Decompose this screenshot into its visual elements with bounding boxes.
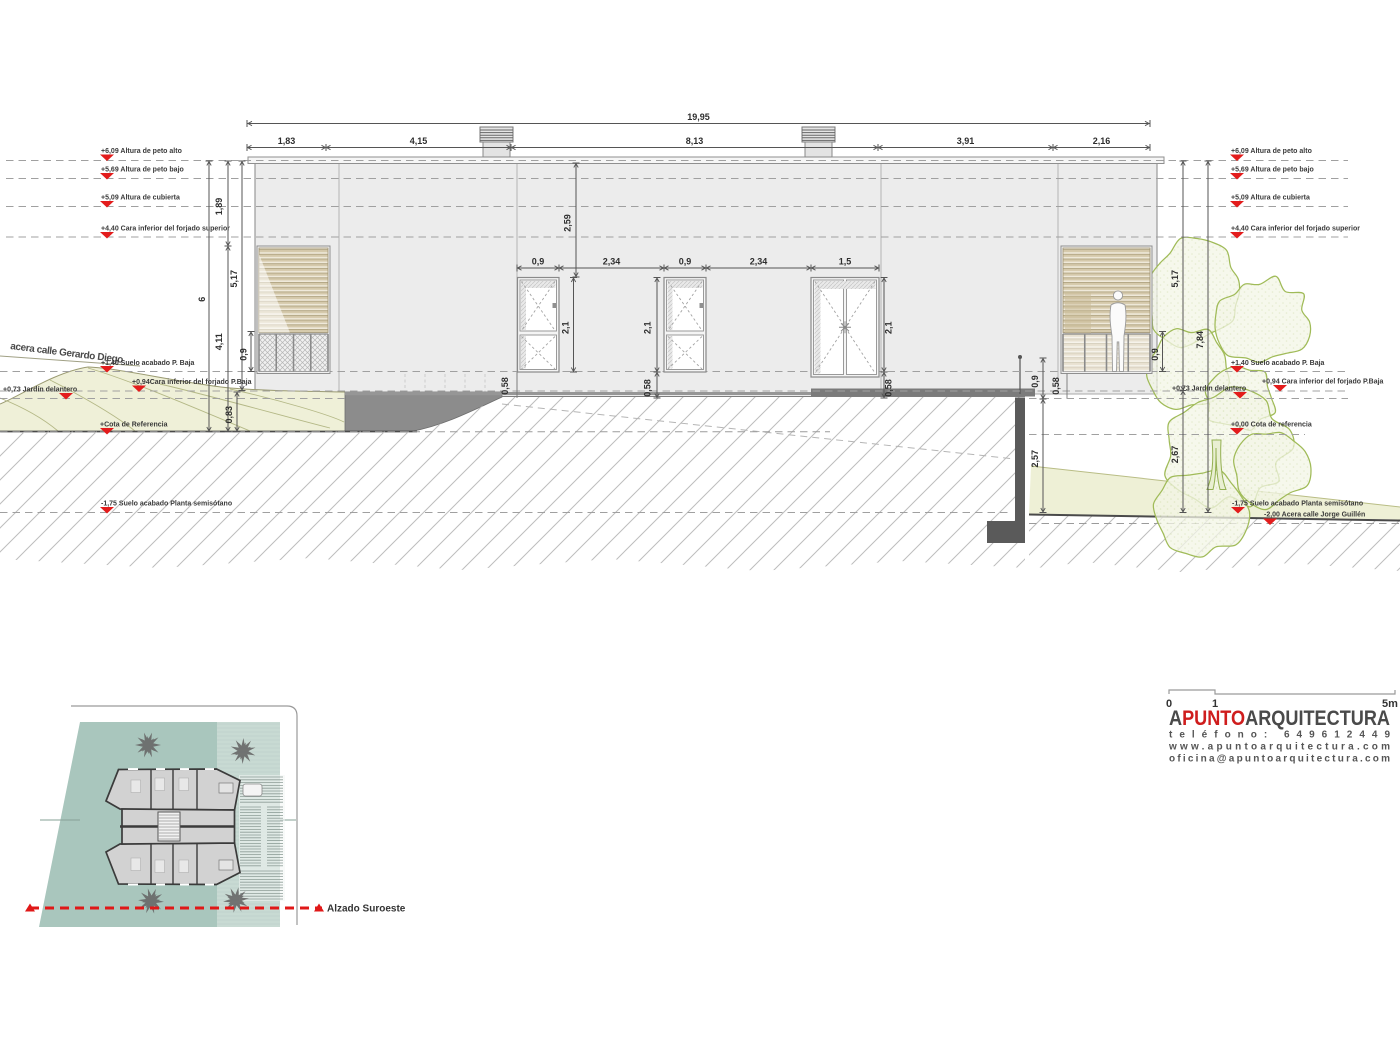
svg-text:oficina@apuntoarquitectura.com: oficina@apuntoarquitectura.com bbox=[1169, 754, 1390, 765]
svg-text:4,15: 4,15 bbox=[410, 136, 428, 146]
svg-text:+0,94Cara inferior del forjado: +0,94Cara inferior del forjado P.Baja bbox=[132, 379, 252, 386]
svg-text:0,9: 0,9 bbox=[239, 348, 249, 361]
svg-text:+6,09 Altura de peto alto: +6,09 Altura de peto alto bbox=[101, 148, 182, 155]
svg-text:-2,00 Acera calle Jorge Guillé: -2,00 Acera calle Jorge Guillén bbox=[1264, 512, 1365, 519]
svg-text:+1,40 Suelo acabado P. Baja: +1,40 Suelo acabado P. Baja bbox=[1231, 360, 1325, 367]
svg-text:+5,09 Altura de cubierta: +5,09 Altura de cubierta bbox=[1231, 195, 1310, 202]
svg-text:+0,00 Cota de referencia: +0,00 Cota de referencia bbox=[1231, 422, 1312, 429]
svg-text:+0,94 Cara inferior del forjad: +0,94 Cara inferior del forjado P.Baja bbox=[1262, 379, 1384, 386]
svg-text:2,57: 2,57 bbox=[1030, 450, 1040, 468]
svg-text:0,83: 0,83 bbox=[224, 406, 234, 424]
svg-text:0,9: 0,9 bbox=[1030, 375, 1040, 388]
svg-text:1,5: 1,5 bbox=[839, 257, 852, 267]
svg-text:2,34: 2,34 bbox=[750, 257, 768, 267]
svg-text:3,91: 3,91 bbox=[957, 136, 975, 146]
svg-text:0,58: 0,58 bbox=[643, 379, 653, 397]
svg-text:+Cota de Referencia: +Cota de Referencia bbox=[100, 422, 168, 429]
svg-text:2,67: 2,67 bbox=[1170, 446, 1180, 464]
svg-text:2,34: 2,34 bbox=[603, 257, 621, 267]
svg-text:APUNTOARQUITECTURA: APUNTOARQUITECTURA bbox=[1169, 707, 1390, 730]
svg-text:0,9: 0,9 bbox=[532, 257, 545, 267]
svg-text:0,9: 0,9 bbox=[679, 257, 692, 267]
svg-text:+5,69 Altura de peto bajo: +5,69 Altura de peto bajo bbox=[1231, 167, 1314, 174]
svg-text:+6,09 Altura de peto alto: +6,09 Altura de peto alto bbox=[1231, 148, 1312, 155]
svg-text:+4,40 Cara inferior del forjad: +4,40 Cara inferior del forjado superior bbox=[1231, 226, 1360, 233]
svg-text:19,95: 19,95 bbox=[687, 112, 710, 122]
svg-text:5,17: 5,17 bbox=[229, 270, 239, 288]
svg-text:2,1: 2,1 bbox=[884, 321, 894, 334]
svg-text:-1,75 Suelo acabado Planta sem: -1,75 Suelo acabado Planta semisótano bbox=[101, 501, 232, 508]
svg-text:+4,40 Cara inferior del forjad: +4,40 Cara inferior del forjado superior bbox=[101, 226, 230, 233]
svg-text:2,16: 2,16 bbox=[1093, 136, 1111, 146]
svg-text:2,1: 2,1 bbox=[561, 321, 571, 334]
svg-text:+5,69 Altura de peto bajo: +5,69 Altura de peto bajo bbox=[101, 167, 184, 174]
svg-text:8,13: 8,13 bbox=[686, 136, 704, 146]
svg-text:0,58: 0,58 bbox=[500, 377, 510, 395]
svg-text:2,59: 2,59 bbox=[563, 214, 573, 232]
svg-text:Alzado Suroeste: Alzado Suroeste bbox=[327, 904, 406, 915]
svg-text:5,17: 5,17 bbox=[1170, 270, 1180, 288]
svg-text:7,84: 7,84 bbox=[1195, 331, 1205, 349]
svg-text:0,58: 0,58 bbox=[884, 379, 894, 397]
svg-text:-1,75 Suelo acabado Planta sem: -1,75 Suelo acabado Planta semisótano bbox=[1232, 501, 1363, 508]
svg-text:+0,73 Jardín delantero: +0,73 Jardín delantero bbox=[3, 387, 77, 394]
svg-text:1,89: 1,89 bbox=[214, 198, 224, 216]
svg-text:2,1: 2,1 bbox=[643, 321, 653, 334]
svg-text:+5,09 Altura de cubierta: +5,09 Altura de cubierta bbox=[101, 195, 180, 202]
svg-text:0,58: 0,58 bbox=[1051, 377, 1061, 395]
svg-text:6: 6 bbox=[197, 297, 207, 302]
svg-text:0,9: 0,9 bbox=[1150, 348, 1160, 361]
svg-text:+1,40 Suelo acabado P. Baja: +1,40 Suelo acabado P. Baja bbox=[101, 360, 195, 367]
svg-text:4,11: 4,11 bbox=[214, 333, 224, 350]
svg-text:www.apuntoarquitectura.com: www.apuntoarquitectura.com bbox=[1168, 742, 1390, 753]
svg-text:1,83: 1,83 bbox=[278, 136, 296, 146]
